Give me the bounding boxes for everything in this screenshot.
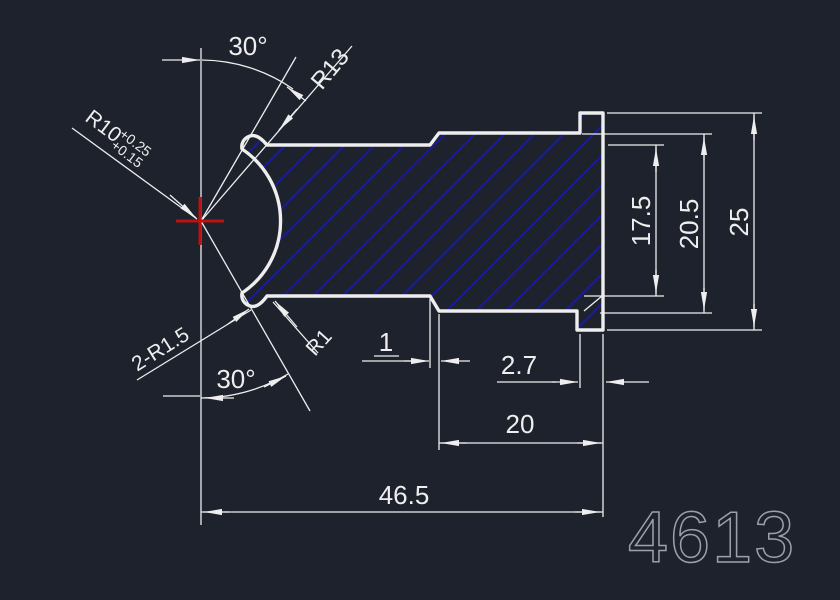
dim-20-text: 20 [506, 409, 535, 439]
drawing-number: 4613 [628, 498, 796, 578]
dim-17-5-text: 17.5 [626, 196, 656, 247]
chamfer-text: 1 [379, 327, 393, 357]
cad-canvas: 30° R13 R10 +0.25 +0.15 2-R1.5 30° R1 [0, 0, 840, 600]
cad-drawing: 30° R13 R10 +0.25 +0.15 2-R1.5 30° R1 [0, 0, 840, 600]
dim-20-5-text: 20.5 [674, 199, 704, 250]
angle-top-text: 30° [228, 31, 267, 61]
part-outline [242, 113, 603, 330]
dim-2-7-text: 2.7 [501, 350, 537, 380]
dim-25-text: 25 [724, 208, 754, 237]
angle-bottom-text: 30° [216, 364, 255, 394]
dim-46-5-text: 46.5 [379, 480, 430, 510]
